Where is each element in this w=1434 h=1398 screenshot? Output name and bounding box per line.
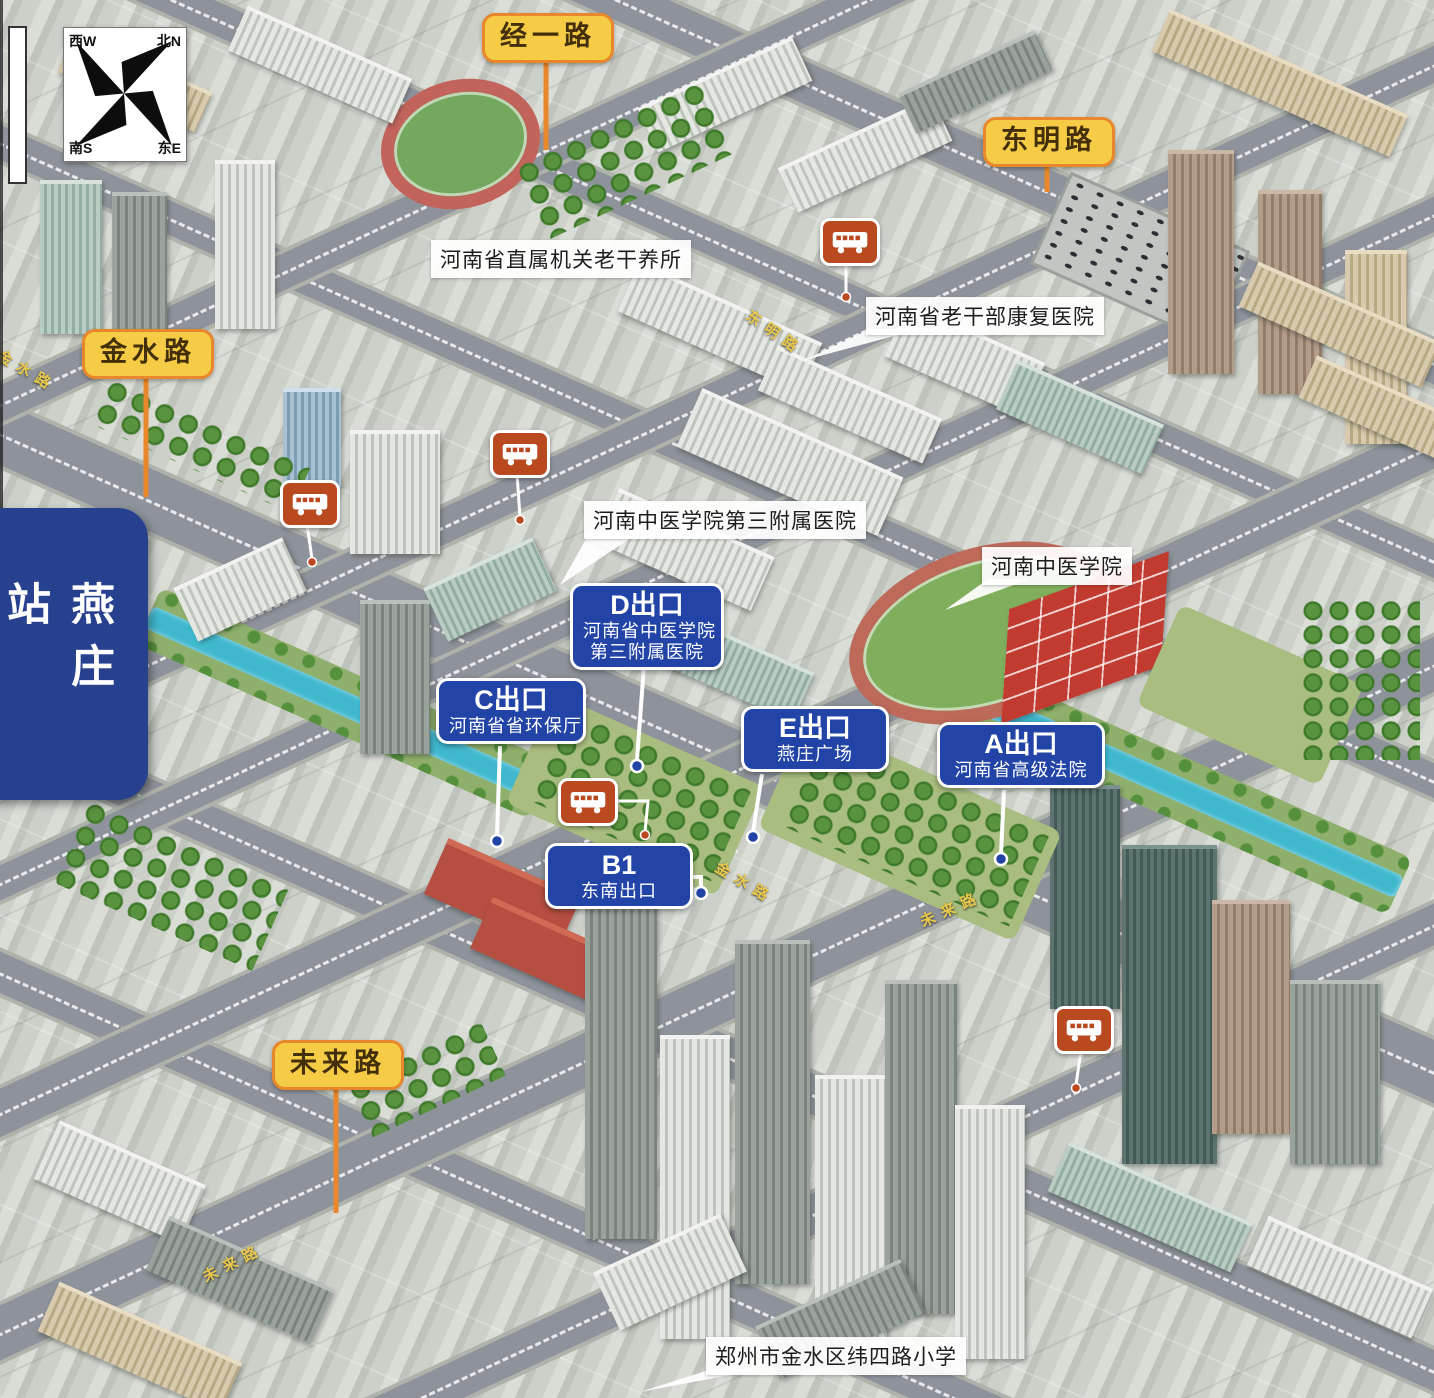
poi-label-third-hospital: 河南中医学院第三附属医院 [584,501,866,539]
exit-label-a: A出口 河南省高级法院 [937,722,1105,788]
exit-label-d: D出口 河南省中医学院 第三附属医院 [570,583,724,670]
exit-a-sub: 河南省高级法院 [950,760,1092,781]
tower-dark [1050,785,1120,1009]
station-name-text: 燕庄站 [0,581,120,727]
bus-icon [500,441,540,467]
exit-d-sub: 河南省中医学院 [583,621,711,642]
building [360,600,430,754]
poi-label-rehab-hospital: 河南省老干部康复医院 [866,297,1104,335]
road-badge-dongminglu: 东明路 [983,117,1115,167]
exit-e-title: E出口 [754,713,876,744]
exit-d-sub: 第三附属医院 [583,642,711,663]
building [40,180,102,334]
compass-rose-icon: 西W 北N 南S 东E [63,27,187,162]
exit-b1-title: B1 [558,850,680,881]
bus-stop-icon [490,430,550,478]
exit-d-title: D出口 [583,590,711,621]
bus-icon [568,789,608,815]
road-badge-jingyilu: 经一路 [482,13,614,63]
compass-west-label: 西W [69,31,96,51]
exit-a-title: A出口 [950,729,1092,760]
poi-label-primary-school: 郑州市金水区纬四路小学 [706,1337,966,1375]
poi-label-tcm-college: 河南中医学院 [982,547,1132,585]
bus-stop-icon [558,778,618,826]
poi-label-retirement-home: 河南省直属机关老干养所 [431,240,691,278]
bus-stop-icon [820,218,880,266]
compass-north-label: 北N [157,31,181,51]
tower [1212,900,1290,1134]
tower-dark [1122,845,1217,1164]
isometric-city-map: 金水路 未来路 东明路 未来路 金水路 经一路 东明路 金水路 未来路 河南省直… [0,0,1434,1398]
road-badge-weilailu: 未来路 [272,1040,404,1090]
building [215,160,275,329]
tower [735,940,810,1284]
map-frame-edge [0,0,3,532]
exit-label-e: E出口 燕庄广场 [741,706,889,772]
building [1290,980,1380,1164]
tower [585,905,657,1239]
bus-icon [1064,1017,1104,1043]
exit-label-c: C出口 河南省省环保厅 [436,678,586,744]
exit-c-title: C出口 [449,685,573,716]
station-name-plate: 燕庄站 [0,508,148,800]
bus-icon [830,229,870,255]
exit-c-sub: 河南省省环保厅 [449,716,573,737]
exit-b1-sub: 东南出口 [558,881,680,902]
exit-e-sub: 燕庄广场 [754,744,876,765]
building [112,192,167,336]
road-badge-jinshuilu: 金水路 [82,329,214,379]
building [350,430,440,554]
compass-east-label: 东E [158,138,181,158]
exit-label-b1: B1 东南出口 [545,843,693,909]
bus-icon [290,491,330,517]
building-row [228,6,412,124]
bus-stop-icon [1054,1006,1114,1054]
tower [955,1105,1025,1359]
compass-south-label: 南S [69,138,92,158]
cropped-legend-box [8,26,27,184]
bus-stop-icon [280,480,340,528]
tree-cluster [1300,600,1420,760]
tower [1168,150,1234,374]
